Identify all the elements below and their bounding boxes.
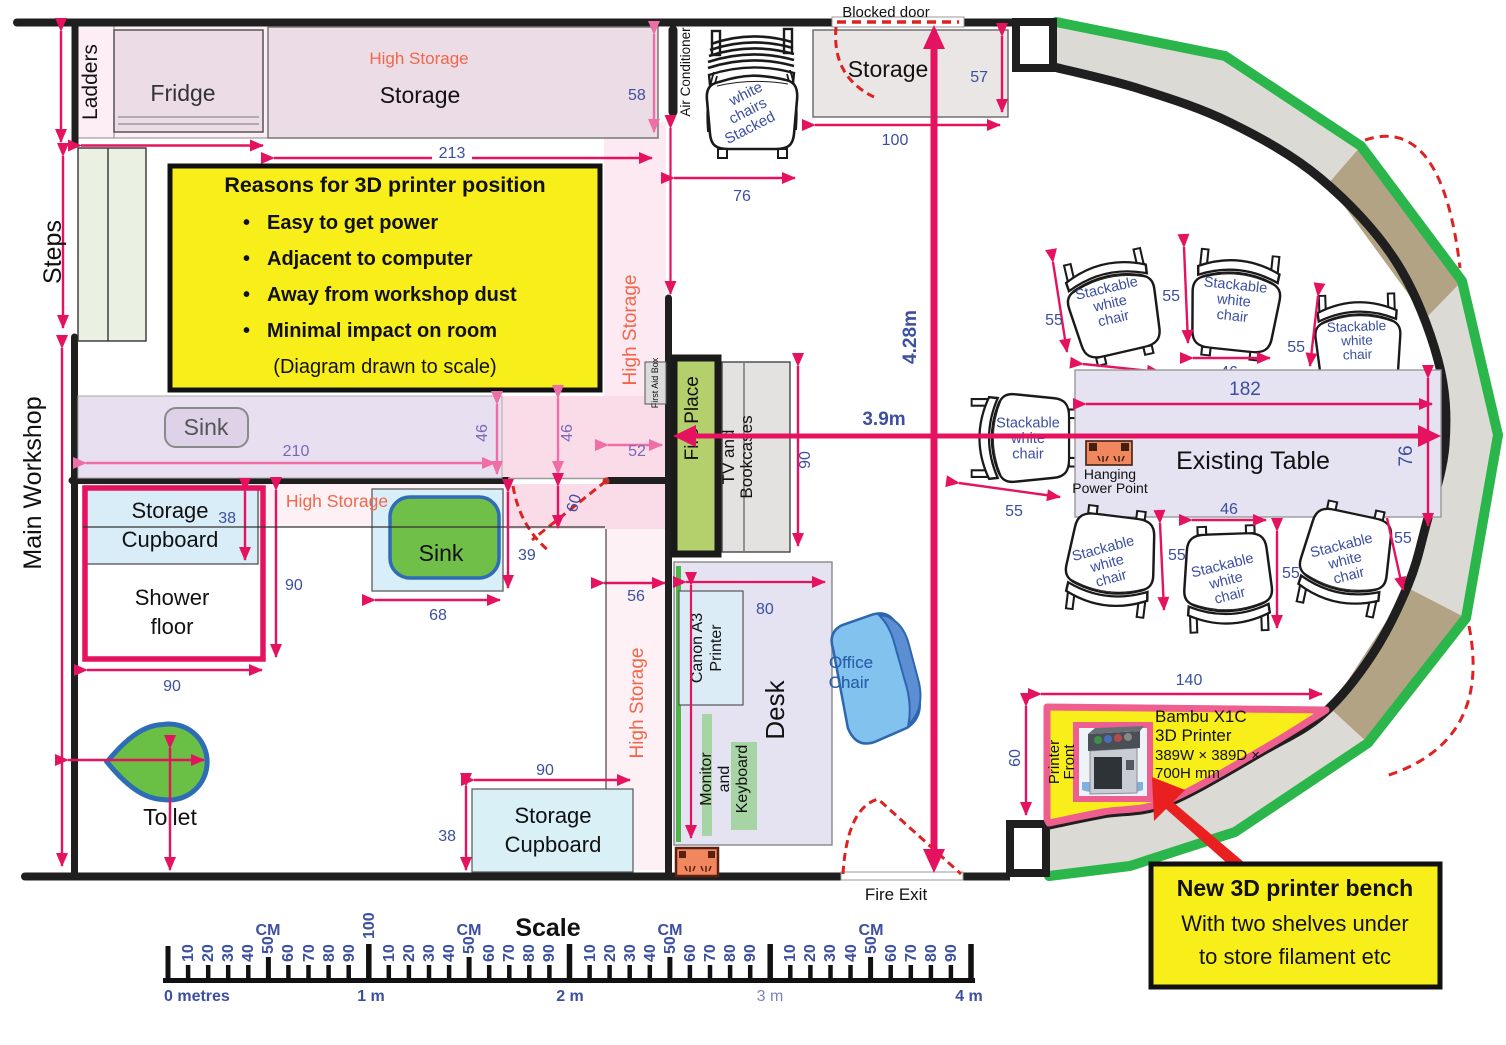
svg-text:20: 20 xyxy=(200,944,217,962)
svg-text:Away from workshop dust: Away from workshop dust xyxy=(267,284,517,306)
svg-text:56: 56 xyxy=(627,588,645,605)
svg-text:Fridge: Fridge xyxy=(150,80,215,106)
svg-text:700H mm: 700H mm xyxy=(1155,765,1220,782)
svg-text:First Aid Box: First Aid Box xyxy=(650,357,660,408)
svg-text:90: 90 xyxy=(943,944,960,962)
svg-text:CM: CM xyxy=(457,922,482,939)
svg-text:182: 182 xyxy=(1229,379,1261,400)
svg-text:Storage: Storage xyxy=(380,82,461,108)
svg-text:Reasons for 3D printer positio: Reasons for 3D printer position xyxy=(224,173,545,197)
svg-text:4 m: 4 m xyxy=(955,988,983,1005)
svg-text:60: 60 xyxy=(481,944,498,962)
svg-text:60: 60 xyxy=(883,944,900,962)
svg-text:70: 70 xyxy=(301,944,318,962)
svg-text:30: 30 xyxy=(421,944,438,962)
svg-text:Front: Front xyxy=(1061,744,1078,780)
svg-text:38: 38 xyxy=(218,510,236,527)
svg-text:floor: floor xyxy=(151,614,194,639)
svg-text:210: 210 xyxy=(283,443,310,460)
svg-text:white: white xyxy=(1010,431,1045,447)
svg-text:Storage: Storage xyxy=(131,498,208,523)
svg-text:Cupboard: Cupboard xyxy=(505,832,602,857)
svg-text:Blocked door: Blocked door xyxy=(842,4,930,21)
svg-text:High Storage: High Storage xyxy=(369,49,468,68)
svg-text:and: and xyxy=(716,766,733,793)
svg-text:55: 55 xyxy=(1045,312,1063,329)
svg-text:•: • xyxy=(243,248,250,270)
svg-text:With two shelves under: With two shelves under xyxy=(1181,911,1408,936)
svg-text:3.9m: 3.9m xyxy=(862,409,905,430)
svg-text:3 m: 3 m xyxy=(757,988,784,1005)
svg-text:Minimal impact on room: Minimal impact on room xyxy=(267,320,497,342)
svg-text:CM: CM xyxy=(256,922,281,939)
svg-text:90: 90 xyxy=(163,678,181,695)
svg-text:55: 55 xyxy=(1282,565,1300,582)
svg-text:Monitor: Monitor xyxy=(698,752,715,806)
svg-text:Storage: Storage xyxy=(514,803,591,828)
svg-text:40: 40 xyxy=(843,944,860,962)
svg-text:55: 55 xyxy=(1168,547,1186,564)
svg-text:10: 10 xyxy=(180,944,197,962)
svg-text:40: 40 xyxy=(240,944,257,962)
svg-text:38: 38 xyxy=(438,828,456,845)
svg-text:55: 55 xyxy=(1287,339,1305,356)
svg-text:389W × 389D ×: 389W × 389D × xyxy=(1155,747,1260,764)
svg-text:0 metres: 0 metres xyxy=(164,988,230,1005)
svg-text:80: 80 xyxy=(923,944,940,962)
svg-text:Storage: Storage xyxy=(848,56,929,82)
svg-text:76: 76 xyxy=(733,188,751,205)
svg-text:10: 10 xyxy=(582,944,599,962)
svg-text:Easy to get power: Easy to get power xyxy=(267,212,438,234)
svg-text:30: 30 xyxy=(822,944,839,962)
svg-text:1 m: 1 m xyxy=(357,988,385,1005)
svg-text:30: 30 xyxy=(220,944,237,962)
svg-text:Sink: Sink xyxy=(419,540,464,566)
svg-text:80: 80 xyxy=(756,601,774,618)
svg-text:Ladders: Ladders xyxy=(79,44,102,120)
svg-text:30: 30 xyxy=(622,944,639,962)
svg-text:80: 80 xyxy=(521,944,538,962)
svg-text:3D Printer: 3D Printer xyxy=(1155,726,1232,745)
svg-text:46: 46 xyxy=(1220,501,1238,518)
svg-text:55: 55 xyxy=(1162,288,1180,305)
svg-text:10: 10 xyxy=(381,944,398,962)
svg-text:High Storage: High Storage xyxy=(620,275,641,386)
svg-text:20: 20 xyxy=(401,944,418,962)
svg-text:68: 68 xyxy=(429,607,447,624)
svg-text:Fire Exit: Fire Exit xyxy=(865,885,928,904)
svg-text:70: 70 xyxy=(702,944,719,962)
svg-text:100: 100 xyxy=(361,912,378,939)
svg-text:90: 90 xyxy=(797,451,814,469)
svg-text:46: 46 xyxy=(474,424,491,442)
svg-text:Sink: Sink xyxy=(184,414,229,440)
svg-text:Chair: Chair xyxy=(829,673,870,692)
svg-text:CM: CM xyxy=(859,922,884,939)
svg-text:40: 40 xyxy=(642,944,659,962)
svg-text:40: 40 xyxy=(441,944,458,962)
svg-text:Printer: Printer xyxy=(708,624,725,672)
svg-text:•: • xyxy=(243,212,250,234)
svg-text:140: 140 xyxy=(1176,672,1203,689)
svg-text:70: 70 xyxy=(501,944,518,962)
svg-text:60: 60 xyxy=(280,944,297,962)
svg-text:213: 213 xyxy=(439,145,466,162)
svg-text:20: 20 xyxy=(802,944,819,962)
svg-text:Shower: Shower xyxy=(135,585,210,610)
svg-text:chair: chair xyxy=(1216,307,1249,326)
svg-text:Existing Table: Existing Table xyxy=(1176,447,1330,475)
svg-text:Bookcases: Bookcases xyxy=(737,415,756,498)
svg-text:•: • xyxy=(243,320,250,342)
svg-text:Cupboard: Cupboard xyxy=(122,527,219,552)
svg-text:100: 100 xyxy=(882,132,909,149)
svg-text:Scale: Scale xyxy=(515,914,580,942)
svg-text:Power Point: Power Point xyxy=(1072,480,1148,496)
svg-text:52: 52 xyxy=(628,443,646,460)
svg-text:39: 39 xyxy=(518,547,536,564)
svg-text:70: 70 xyxy=(903,944,920,962)
svg-text:Steps: Steps xyxy=(39,220,67,284)
svg-text:High Storage: High Storage xyxy=(286,491,388,511)
svg-text:90: 90 xyxy=(536,762,554,779)
svg-text:Desk: Desk xyxy=(760,679,790,739)
svg-text:Air Conditioner: Air Conditioner xyxy=(678,27,693,117)
svg-text:55: 55 xyxy=(1394,530,1412,547)
svg-text:•: • xyxy=(243,284,250,306)
svg-text:57: 57 xyxy=(970,69,988,86)
svg-text:60: 60 xyxy=(682,944,699,962)
svg-text:chair: chair xyxy=(1343,346,1373,362)
svg-text:80: 80 xyxy=(722,944,739,962)
svg-text:Bambu X1C: Bambu X1C xyxy=(1155,707,1247,726)
svg-text:80: 80 xyxy=(321,944,338,962)
svg-text:New 3D printer bench: New 3D printer bench xyxy=(1177,875,1413,901)
svg-text:Main Workshop: Main Workshop xyxy=(19,396,47,569)
svg-text:76: 76 xyxy=(1396,445,1417,466)
svg-text:CM: CM xyxy=(658,922,683,939)
svg-text:46: 46 xyxy=(559,424,576,442)
svg-text:High Storage: High Storage xyxy=(627,648,648,759)
svg-text:90: 90 xyxy=(742,944,759,962)
svg-text:chair: chair xyxy=(1012,447,1044,463)
svg-text:Stackable: Stackable xyxy=(996,416,1060,432)
svg-text:Office: Office xyxy=(829,653,873,672)
svg-text:90: 90 xyxy=(285,577,303,594)
svg-text:2 m: 2 m xyxy=(556,988,584,1005)
svg-text:to store filament etc: to store filament etc xyxy=(1199,944,1391,969)
svg-text:20: 20 xyxy=(602,944,619,962)
svg-text:Keyboard: Keyboard xyxy=(734,745,751,814)
svg-text:4.28m: 4.28m xyxy=(900,310,921,364)
svg-text:10: 10 xyxy=(782,944,799,962)
svg-text:58: 58 xyxy=(628,87,646,104)
svg-text:Place: Place xyxy=(682,376,703,424)
svg-text:Adjacent to computer: Adjacent to computer xyxy=(267,248,473,270)
svg-text:60: 60 xyxy=(1007,749,1024,767)
svg-text:90: 90 xyxy=(541,944,558,962)
svg-text:55: 55 xyxy=(1005,503,1023,520)
svg-text:(Diagram drawn to scale): (Diagram drawn to scale) xyxy=(273,356,496,378)
svg-text:90: 90 xyxy=(341,944,358,962)
